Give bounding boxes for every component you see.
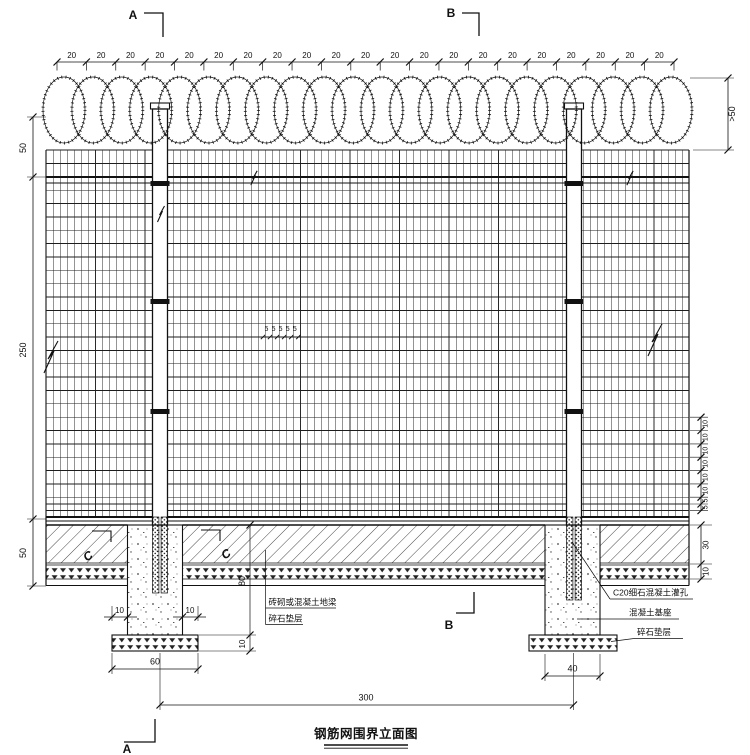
bracket-a-bottom [124, 719, 155, 742]
dim-label-coil-spacing: 20 [97, 51, 106, 60]
annotation-cushion-left: 碎石垫层 [269, 614, 303, 624]
dim-label-pad-thickness: 10 [238, 639, 247, 648]
section-marker-a-bottom: A [123, 742, 132, 755]
dim-label-overhang-left: 10 [115, 606, 124, 615]
dim-label-mesh-bottom-spacing: 5 [703, 505, 710, 509]
left-post-cap [151, 103, 170, 109]
right-post-clamp [565, 299, 584, 304]
dim-label-mesh-bottom-spacing: 10 [703, 487, 710, 495]
right-post [567, 109, 582, 525]
dim-label-mesh-height: 250 [18, 342, 28, 357]
dim-label-coil-spacing: 20 [244, 51, 253, 60]
left-post-clamp [151, 299, 170, 304]
drawing-title: 钢筋网围界立面图 [314, 726, 418, 741]
bracket-b-top [462, 13, 479, 36]
dim-label-coil-height: >50 [727, 106, 737, 121]
section-marker-b-bottom: B [445, 618, 454, 632]
dim-label-mesh-bottom-spacing: 10 [703, 447, 710, 455]
left-pad [112, 635, 198, 651]
right-post-clamp [565, 181, 584, 186]
dim-label-coil-spacing: 20 [361, 51, 370, 60]
bracket-a-top [144, 13, 163, 37]
dim-label-coil-spacing: 20 [479, 51, 488, 60]
annotation-ground-beam: 砖砌或混凝土地梁 [269, 597, 338, 607]
dim-label-coil-spacing: 20 [537, 51, 546, 60]
dim-label-coil-spacing: 20 [273, 51, 282, 60]
dim-label-coil-spacing: 20 [214, 51, 223, 60]
right-post-embedded-bar [575, 517, 581, 600]
left-dimension-chain [27, 114, 46, 590]
break-mark [648, 324, 662, 356]
cushion-band [46, 565, 128, 579]
dim-label-mesh-mid-spacing: 5 [265, 326, 269, 333]
cushion-right-leader [611, 639, 683, 642]
dim-label-mesh-bottom-spacing: 10 [703, 420, 710, 428]
dim-label-coil-spacing: 20 [390, 51, 399, 60]
dim-label-coil-spacing: 20 [420, 51, 429, 60]
right-post-clamp [565, 409, 584, 414]
dim-label-mesh-bottom-spacing: 10 [703, 433, 710, 441]
dim-label-mesh-bottom-spacing: 10 [703, 473, 710, 481]
ground-beam-hatch [600, 525, 689, 563]
dim-label-cushion-depth: 10 [702, 567, 711, 576]
annotation-grout: C20细石混凝土灌孔 [613, 588, 689, 598]
dim-label-coil-spacing: 20 [126, 51, 135, 60]
dim-label-post-spacing: 300 [358, 693, 373, 703]
dim-label-overhang-right: 10 [186, 606, 195, 615]
dim-label-left-top: 50 [18, 143, 28, 153]
razor-wire-coils [43, 77, 692, 143]
dim-label-mesh-mid-spacing: 5 [272, 326, 276, 333]
dim-label-left-ground: 50 [18, 548, 28, 558]
right-post-embedded-bar [567, 517, 573, 600]
title-underline [324, 745, 408, 748]
steel-mesh-grid [46, 150, 689, 521]
dim-label-coil-spacing: 20 [155, 51, 164, 60]
dim-label-pad-width: 60 [150, 657, 160, 667]
section-marker-a-top: A [129, 8, 138, 22]
left-post-embedded-bar [153, 517, 159, 593]
drawing-sheet: 2020202020202020202020202020202020202020… [0, 0, 750, 755]
dim-label-coil-spacing: 20 [185, 51, 194, 60]
dim-label-coil-spacing: 20 [567, 51, 576, 60]
cushion-band [600, 565, 689, 579]
right-post-cap [565, 103, 584, 109]
section-marker-b-top: B [447, 6, 456, 20]
fence-elevation-drawing: 2020202020202020202020202020202020202020… [0, 0, 750, 755]
dim-label-beam-depth: 30 [702, 540, 711, 549]
dim-label-coil-spacing: 20 [655, 51, 664, 60]
dim-label-mesh-bottom-spacing: 10 [703, 460, 710, 468]
dim-label-mesh-bottom-spacing: 5 [703, 499, 710, 503]
left-post-embedded-bar [161, 517, 167, 593]
ground-beam-hatch [183, 525, 546, 563]
dim-label-mesh-mid-spacing: 5 [293, 326, 297, 333]
dim-label-coil-spacing: 20 [596, 51, 605, 60]
left-post [153, 109, 168, 525]
dim-label-mesh-mid-spacing: 5 [279, 326, 283, 333]
ground-layers [46, 150, 689, 586]
left-post-clamp [151, 409, 170, 414]
dim-label-coil-spacing: 20 [67, 51, 76, 60]
right-pad [529, 635, 617, 651]
dim-label-coil-spacing: 20 [332, 51, 341, 60]
dim-label-coil-spacing: 20 [449, 51, 458, 60]
dim-label-pier-width: 40 [567, 664, 577, 674]
dim-label-coil-spacing: 20 [302, 51, 311, 60]
dim-label-coil-spacing: 20 [625, 51, 634, 60]
left-post-clamp [151, 181, 170, 186]
annotation-cushion-right: 碎石垫层 [637, 627, 671, 637]
dim-label-foundation-depth: 80 [237, 576, 247, 586]
annotation-concrete-base: 混凝土基座 [629, 608, 672, 618]
dim-label-coil-spacing: 20 [508, 51, 517, 60]
bracket-b-bottom [456, 592, 474, 613]
dim-label-mesh-mid-spacing: 5 [286, 326, 290, 333]
